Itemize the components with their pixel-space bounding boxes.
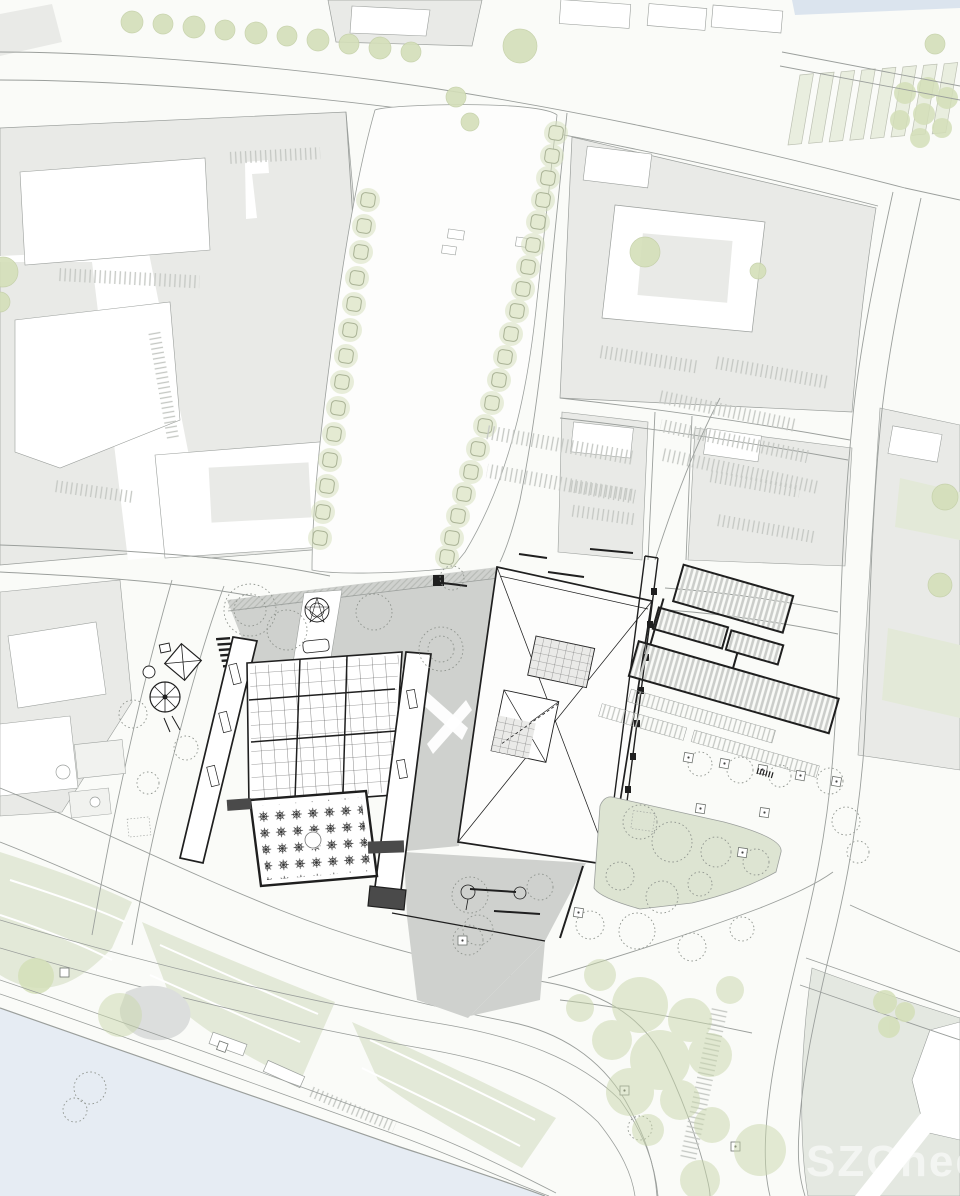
- tree: [18, 958, 54, 994]
- building-cut-2: [647, 4, 707, 31]
- block-sw-inset-2: [0, 716, 78, 796]
- courtyard-link-east: [368, 840, 404, 853]
- courtyard-link-west: [227, 798, 252, 811]
- skylight-lower: [491, 690, 559, 762]
- site-plan-page: SZCheesy: [0, 0, 960, 1196]
- yard-c-core: [209, 462, 312, 522]
- block-sw-inset-1: [8, 622, 106, 708]
- site-plan-canvas: SZCheesy: [0, 0, 960, 1196]
- yard-a: [20, 158, 210, 265]
- block-top-centre-inset: [350, 6, 430, 36]
- building-cut-1: [559, 0, 631, 28]
- watermark: SZCheesy: [806, 1137, 960, 1186]
- east-wing-endcap: [368, 886, 406, 910]
